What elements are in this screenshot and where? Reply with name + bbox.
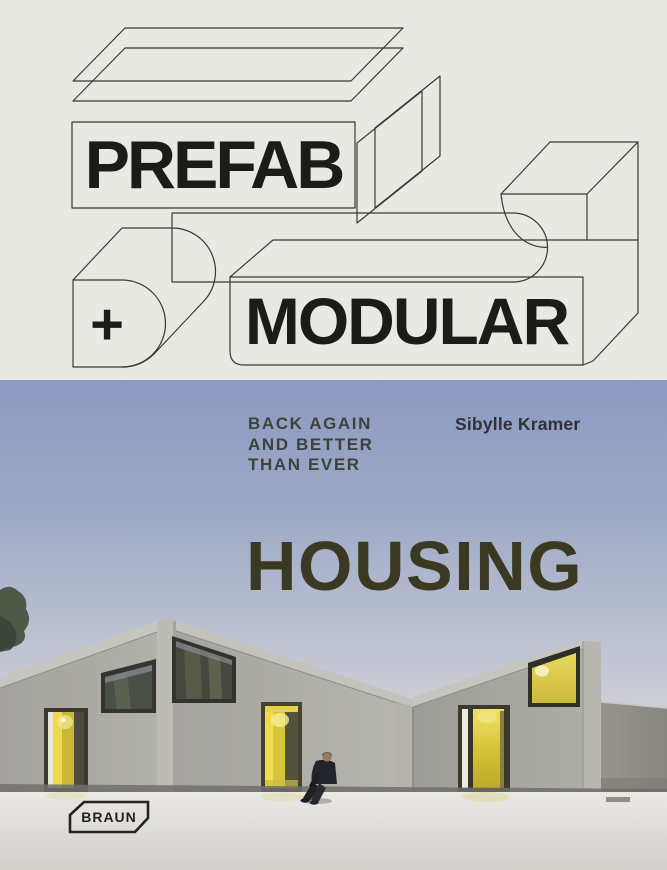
prefab-title: PREFAB <box>72 122 355 208</box>
tagline-line-1: BACK AGAIN <box>248 414 374 435</box>
concrete-fin <box>583 641 601 792</box>
glowing-doorway <box>261 702 302 792</box>
boundary-wall <box>601 702 667 792</box>
slab-shape-2 <box>73 48 403 101</box>
tagline-line-2: AND BETTER <box>248 435 374 456</box>
drain-grate <box>606 797 630 802</box>
book-cover: PREFAB + MODULAR <box>0 0 667 870</box>
panel-shape-2 <box>357 91 422 223</box>
modular-title: MODULAR <box>230 277 583 365</box>
glowing-doorway <box>458 705 510 792</box>
main-title: HOUSING <box>246 531 583 601</box>
cover-top-section: PREFAB + MODULAR <box>0 0 667 380</box>
slab-shape-1 <box>73 28 403 81</box>
tube-shape <box>172 213 548 282</box>
plus-sign: + <box>84 297 130 351</box>
publisher-logo-label: BRAUN <box>70 802 148 832</box>
tagline: BACK AGAIN AND BETTER THAN EVER <box>248 414 374 476</box>
panel-shape-1 <box>375 76 440 208</box>
glowing-doorway <box>44 708 88 792</box>
author-name: Sibylle Kramer <box>455 414 580 435</box>
tagline-line-3: THAN EVER <box>248 455 374 476</box>
column-top-face <box>501 142 638 194</box>
